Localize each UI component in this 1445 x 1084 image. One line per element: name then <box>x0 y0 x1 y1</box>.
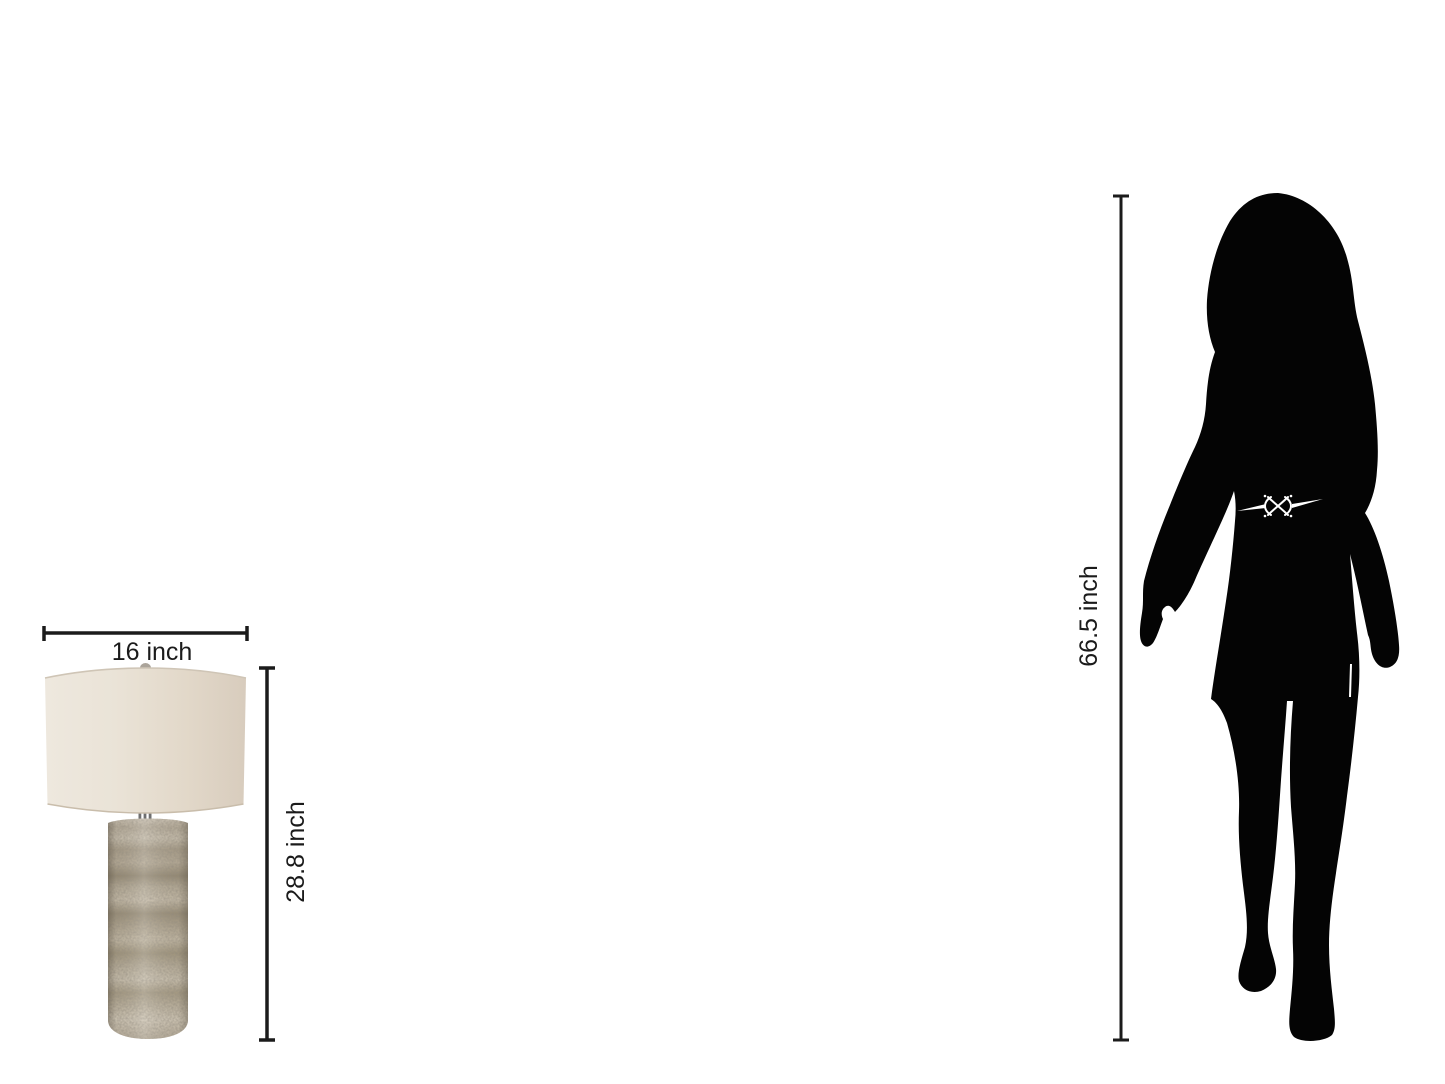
lamp-base <box>108 819 188 1040</box>
person-height-label: 66.5 inch <box>1075 546 1103 686</box>
lamp-width-label: 16 inch <box>44 638 260 666</box>
product-dimension-image: 16 inch 28.8 inch 66.5 inch <box>0 0 1445 1084</box>
person-height-dimension-line <box>1113 196 1129 1040</box>
woman-silhouette <box>1140 193 1399 1041</box>
woman-silhouette-body <box>1140 193 1399 1041</box>
lamp-shade <box>45 668 246 813</box>
lamp-height-dimension-line <box>259 668 275 1040</box>
lamp-height-label: 28.8 inch <box>282 782 310 922</box>
skirt-slit <box>1350 664 1351 697</box>
table-lamp-illustration <box>45 663 246 1039</box>
scene-graphics <box>0 0 1445 1084</box>
